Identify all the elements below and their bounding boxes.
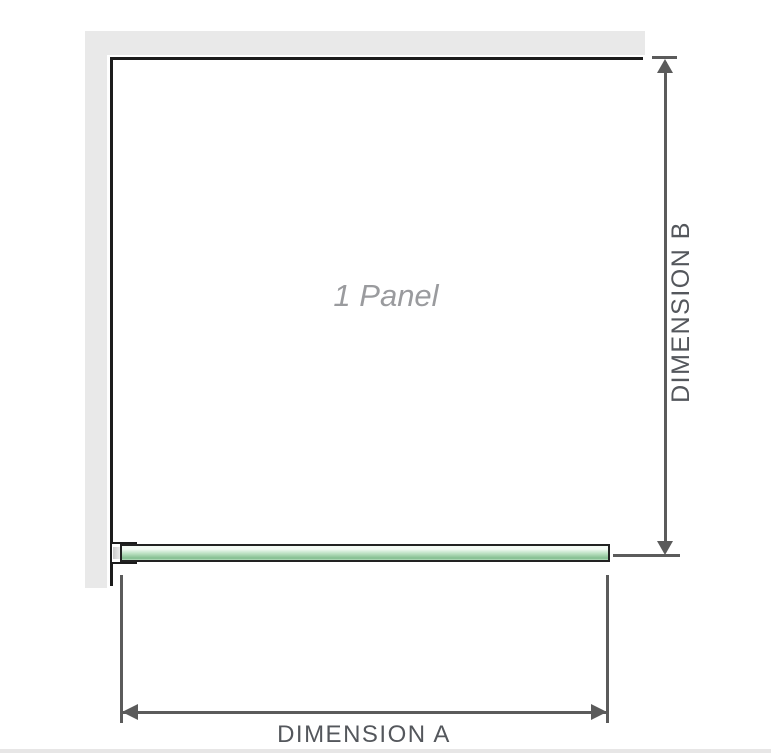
panel-dimension-diagram: 1 Panel DIMENSION B DIMENSION A (0, 0, 771, 755)
dimension-a-line (123, 711, 606, 714)
dimension-a-extension-left (120, 575, 123, 723)
glass-panel-bar (120, 544, 610, 562)
wall-top-strip (85, 31, 645, 55)
wall-side-strip (85, 31, 107, 588)
arrow-left-icon (122, 704, 138, 720)
panel-count-label: 1 Panel (286, 278, 486, 314)
bottom-divider (0, 749, 771, 753)
panel-outline-left (110, 57, 113, 586)
panel-outline-top (110, 57, 643, 60)
dimension-a-extension-right (606, 575, 609, 723)
arrow-up-icon (657, 59, 673, 73)
arrow-down-icon (657, 541, 673, 555)
arrow-right-icon (591, 704, 607, 720)
dimension-a-label: DIMENSION A (164, 722, 564, 748)
dimension-b-label: DIMENSION B (666, 162, 696, 462)
